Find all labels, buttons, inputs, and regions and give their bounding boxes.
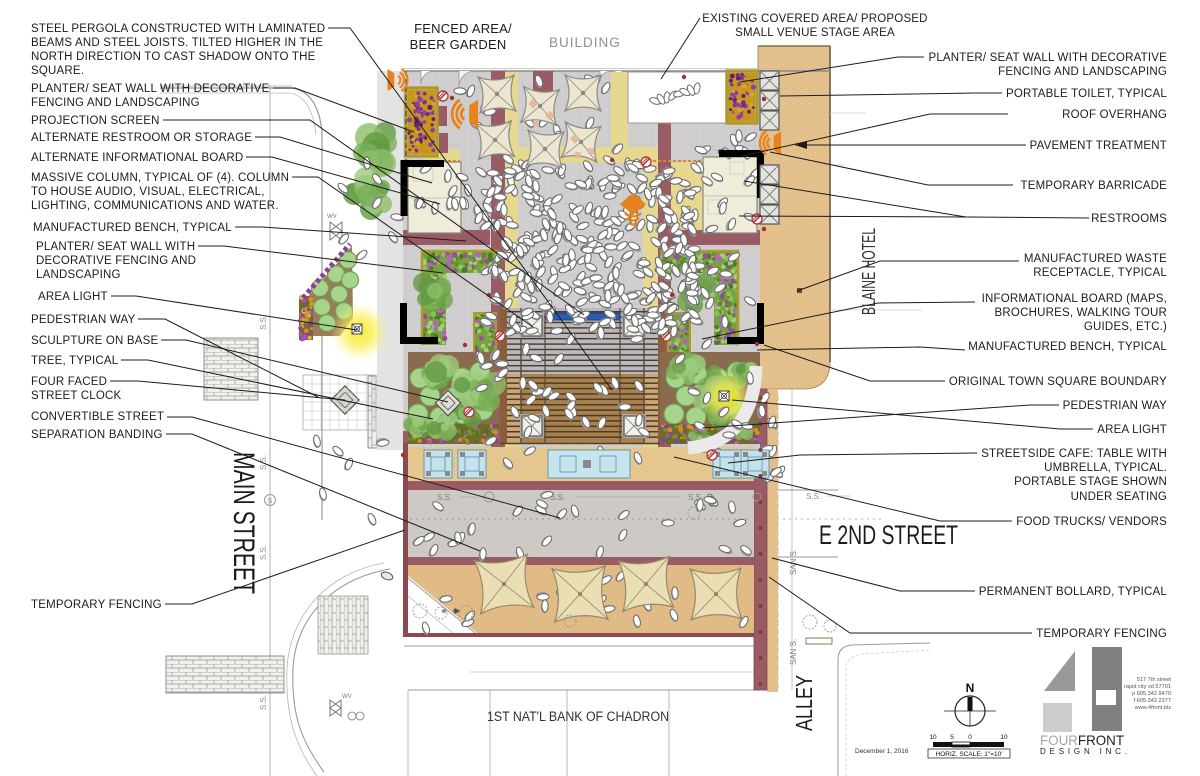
svg-text:NORTH DIRECTION TO CAST SHADOW: NORTH DIRECTION TO CAST SHADOW ONTO THE (31, 51, 316, 63)
svg-text:5: 5 (950, 734, 954, 741)
svg-text:GUIDES, ETC.): GUIDES, ETC.) (1084, 321, 1167, 333)
svg-text:PORTABLE TOILET, TYPICAL: PORTABLE TOILET, TYPICAL (1006, 88, 1167, 100)
svg-text:SQUARE.: SQUARE. (31, 65, 84, 77)
svg-text:f 605.342.2377: f 605.342.2377 (1134, 698, 1171, 704)
svg-text:RESTROOMS: RESTROOMS (1091, 213, 1167, 225)
svg-text:N: N (966, 681, 975, 695)
svg-text:SMALL VENUE STAGE AREA: SMALL VENUE STAGE AREA (735, 27, 895, 39)
svg-text:CONVERTIBLE STREET: CONVERTIBLE STREET (31, 411, 164, 423)
svg-text:TO HOUSE AUDIO, VISUAL, ELECTR: TO HOUSE AUDIO, VISUAL, ELECTRICAL, (31, 186, 265, 198)
svg-text:PERMANENT BOLLARD, TYPICAL: PERMANENT BOLLARD, TYPICAL (979, 586, 1168, 598)
svg-text:S: S (268, 498, 273, 505)
svg-text:BROCHURES, WALKING TOUR: BROCHURES, WALKING TOUR (995, 307, 1167, 319)
svg-text:E 2ND STREET: E 2ND STREET (819, 520, 958, 550)
svg-text:WV: WV (342, 694, 352, 700)
svg-text:SAN S.: SAN S. (789, 639, 798, 665)
svg-text:TEMPORARY FENCING: TEMPORARY FENCING (31, 599, 162, 611)
svg-text:LANDSCAPING: LANDSCAPING (36, 269, 121, 281)
svg-text:PLANTER/ SEAT WALL WITH: PLANTER/ SEAT WALL WITH (36, 241, 195, 253)
svg-text:www.4front.biz: www.4front.biz (1134, 705, 1172, 711)
svg-text:rapid city sd 57701: rapid city sd 57701 (1124, 684, 1171, 690)
svg-text:PAVEMENT TREATMENT: PAVEMENT TREATMENT (1030, 140, 1167, 152)
svg-text:0: 0 (968, 734, 972, 741)
svg-text:1ST NAT'L BANK OF CHADRON: 1ST NAT'L BANK OF CHADRON (487, 709, 669, 724)
svg-text:FENCING AND LANDSCAPING: FENCING AND LANDSCAPING (998, 66, 1167, 78)
svg-text:p 605.342.9470: p 605.342.9470 (1132, 691, 1171, 697)
svg-text:AREA LIGHT: AREA LIGHT (38, 291, 108, 303)
svg-text:December 1, 2016: December 1, 2016 (855, 748, 909, 755)
svg-text:TREE, TYPICAL: TREE, TYPICAL (31, 355, 119, 367)
svg-text:LIGHTING, COMMUNICATIONS AND W: LIGHTING, COMMUNICATIONS AND WATER. (31, 200, 279, 212)
svg-text:EXISTING COVERED AREA/ PROPOSE: EXISTING COVERED AREA/ PROPOSED (702, 13, 927, 25)
svg-text:BEAMS AND STEEL JOISTS. TILTED: BEAMS AND STEEL JOISTS. TILTED HIGHER IN… (31, 37, 323, 49)
svg-text:BUILDING: BUILDING (549, 35, 621, 50)
svg-text:ROOF OVERHANG: ROOF OVERHANG (1062, 109, 1167, 121)
svg-text:FENCING AND LANDSCAPING: FENCING AND LANDSCAPING (31, 97, 200, 109)
svg-text:PROJECTION SCREEN: PROJECTION SCREEN (31, 115, 160, 127)
svg-text:FOURFRONT: FOURFRONT (1040, 732, 1124, 748)
svg-text:ALLEY: ALLEY (791, 675, 817, 731)
svg-text:517 7th street: 517 7th street (1137, 677, 1172, 683)
svg-text:TEMPORARY BARRICADE: TEMPORARY BARRICADE (1020, 180, 1167, 192)
svg-text:S.S.: S.S. (259, 315, 268, 330)
svg-text:MASSIVE COLUMN, TYPICAL OF (4): MASSIVE COLUMN, TYPICAL OF (4). COLUMN (31, 172, 289, 184)
svg-text:MANUFACTURED BENCH, TYPICAL: MANUFACTURED BENCH, TYPICAL (968, 341, 1167, 353)
svg-text:WV: WV (327, 214, 337, 220)
svg-text:MANUFACTURED WASTE: MANUFACTURED WASTE (1024, 253, 1167, 265)
svg-text:STREETSIDE CAFE: TABLE WITH: STREETSIDE CAFE: TABLE WITH (981, 448, 1167, 460)
svg-text:PORTABLE STAGE SHOWN: PORTABLE STAGE SHOWN (1014, 476, 1167, 488)
svg-text:SEPARATION BANDING: SEPARATION BANDING (31, 429, 163, 441)
svg-text:RECEPTACLE, TYPICAL: RECEPTACLE, TYPICAL (1033, 267, 1167, 279)
svg-text:MANUFACTURED BENCH, TYPICAL: MANUFACTURED BENCH, TYPICAL (33, 222, 232, 234)
svg-text:FENCED AREA/: FENCED AREA/ (414, 21, 512, 36)
svg-text:UNDER SEATING: UNDER SEATING (1071, 491, 1167, 503)
svg-text:ALTERNATE RESTROOM OR STORAGE: ALTERNATE RESTROOM OR STORAGE (31, 132, 252, 144)
svg-text:S.S.: S.S. (437, 493, 452, 502)
svg-text:ORIGINAL TOWN SQUARE BOUNDARY: ORIGINAL TOWN SQUARE BOUNDARY (949, 376, 1167, 388)
svg-text:INFORMATIONAL BOARD (MAPS,: INFORMATIONAL BOARD (MAPS, (982, 293, 1167, 305)
svg-text:AREA LIGHT: AREA LIGHT (1097, 424, 1167, 436)
svg-text:SAN S.: SAN S. (789, 549, 798, 575)
svg-text:10: 10 (929, 734, 937, 741)
svg-text:STREET CLOCK: STREET CLOCK (31, 390, 122, 402)
svg-text:MAIN STREET: MAIN STREET (227, 452, 260, 594)
svg-text:BLAINE HOTEL: BLAINE HOTEL (859, 228, 879, 315)
svg-text:ALTERNATE INFORMATIONAL BOARD: ALTERNATE INFORMATIONAL BOARD (31, 152, 243, 164)
svg-text:10: 10 (1000, 734, 1008, 741)
svg-text:BEER GARDEN: BEER GARDEN (410, 37, 507, 52)
svg-text:S.S.: S.S. (259, 695, 268, 710)
svg-text:PEDESTRIAN WAY: PEDESTRIAN WAY (1063, 400, 1168, 412)
svg-text:S.S.: S.S. (806, 492, 821, 501)
svg-text:DECORATIVE FENCING AND: DECORATIVE FENCING AND (36, 255, 196, 267)
svg-text:TEMPORARY FENCING: TEMPORARY FENCING (1036, 628, 1167, 640)
svg-text:FOUR FACED: FOUR FACED (31, 376, 107, 388)
svg-text:UMBRELLA, TYPICAL.: UMBRELLA, TYPICAL. (1044, 462, 1167, 474)
svg-text:PLANTER/ SEAT WALL WITH DECORA: PLANTER/ SEAT WALL WITH DECORATIVE (31, 83, 270, 95)
svg-text:HORIZ. SCALE: 1"=10': HORIZ. SCALE: 1"=10' (936, 751, 1003, 758)
svg-text:STEEL PERGOLA CONSTRUCTED WITH: STEEL PERGOLA CONSTRUCTED WITH LAMINATED (31, 23, 325, 35)
svg-text:PEDESTRIAN WAY: PEDESTRIAN WAY (31, 314, 136, 326)
svg-text:SCULPTURE ON BASE: SCULPTURE ON BASE (31, 335, 159, 347)
svg-text:PLANTER/ SEAT WALL WITH DECORA: PLANTER/ SEAT WALL WITH DECORATIVE (928, 52, 1167, 64)
svg-text:FOOD TRUCKS/ VENDORS: FOOD TRUCKS/ VENDORS (1016, 516, 1167, 528)
